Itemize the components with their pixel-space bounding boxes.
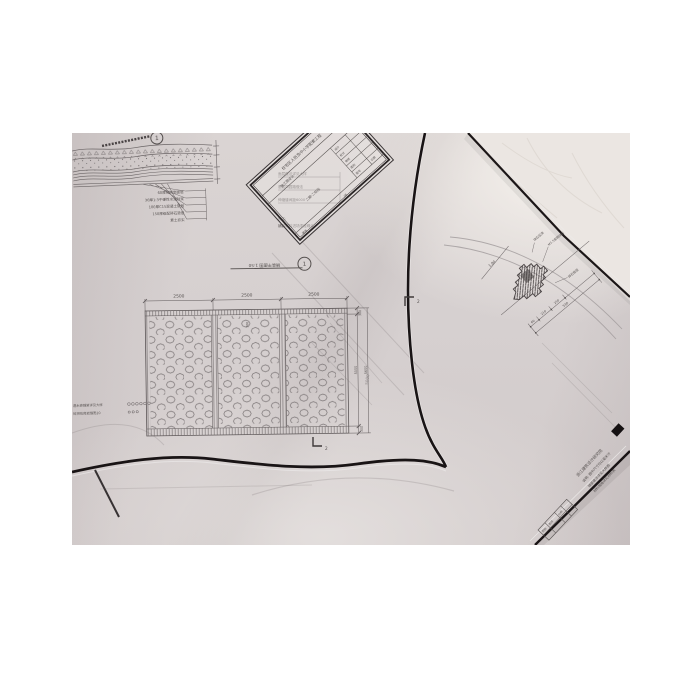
dim-right: 5000 [354, 366, 358, 375]
layer-label: 150厚级配碎石垫层 [152, 210, 185, 216]
layer-label: 素土夯实 [170, 217, 185, 223]
drawing-collage: 5000 1 [72, 133, 630, 545]
layer-label: 100厚C15混凝土垫层 [149, 203, 185, 209]
dim-right: 300 [360, 426, 364, 432]
plan-panel [217, 315, 281, 428]
paving-plan: 2500 2500 2500 300 5000 300 5600 500 1 铺… [142, 256, 370, 438]
plan-panel [285, 314, 345, 427]
dim-right: 300 [358, 310, 362, 316]
layer-label: 60厚花岗岩面层 [157, 189, 184, 195]
dim-top: 2500 [173, 293, 184, 299]
plan-panel [149, 316, 213, 429]
title-block: 住宅区人防及中小学配套工程 施工图设计 二期·二标段 设计 校对 审核 图别 图… [246, 133, 393, 244]
plan-title: 铺装平面图 1:50 [248, 262, 280, 269]
layer-label: 30厚1:3干硬性水泥砂浆 [145, 196, 185, 202]
detail-dim: 60 [530, 319, 536, 325]
section-cut-number: 2 [417, 299, 420, 304]
blueprint-photo: 5000 1 [72, 133, 630, 545]
mini-table-cell: 比例 [557, 509, 564, 516]
plan-title-number: 1 [303, 262, 307, 268]
detail-dim: 250 [553, 298, 560, 305]
detail-dim-total: 530 [562, 301, 569, 308]
detail-dim: 210 [540, 309, 547, 316]
detail-label: 碎石垫层 [567, 267, 580, 279]
dim-small: 500 [245, 322, 249, 328]
page: 5000 1 [0, 0, 700, 700]
section-cut-number: 2 [325, 446, 328, 451]
dim-top: 2500 [241, 292, 252, 298]
section-leaders [143, 182, 206, 222]
ghost-dim-5000: 5000 [364, 374, 370, 386]
mini-table: 图别 图号 比例 [538, 499, 578, 540]
section-cut-bottom: 2 [313, 437, 328, 451]
detail-dim-top: 1.80 [488, 259, 497, 268]
detail-flag-number: 1 [155, 135, 159, 142]
dim-top: 2500 [308, 292, 319, 298]
dim-total: 5600 [364, 366, 368, 375]
plan-notes: 透水砖铺装详见大样 碎拼花岗岩缝宽20 [73, 400, 151, 416]
pavement-section-detail: 1 60厚花岗岩面层 30厚1:3干硬性水泥砂浆 100厚C15混凝土垫层 15… [72, 133, 222, 226]
detail-label: 块石压顶 [532, 230, 545, 242]
bottom-right-sheet: 浙江建筑设计研究院 说明: 图中尺寸均以毫米计 铺装做法详见大样图 材料规格详见… [530, 423, 630, 545]
plan-note: 碎拼花岗岩缝宽20 [73, 410, 100, 416]
mini-table-cell: 图号 [548, 519, 555, 526]
plan-note: 透水砖铺装详见大样 [73, 402, 104, 408]
